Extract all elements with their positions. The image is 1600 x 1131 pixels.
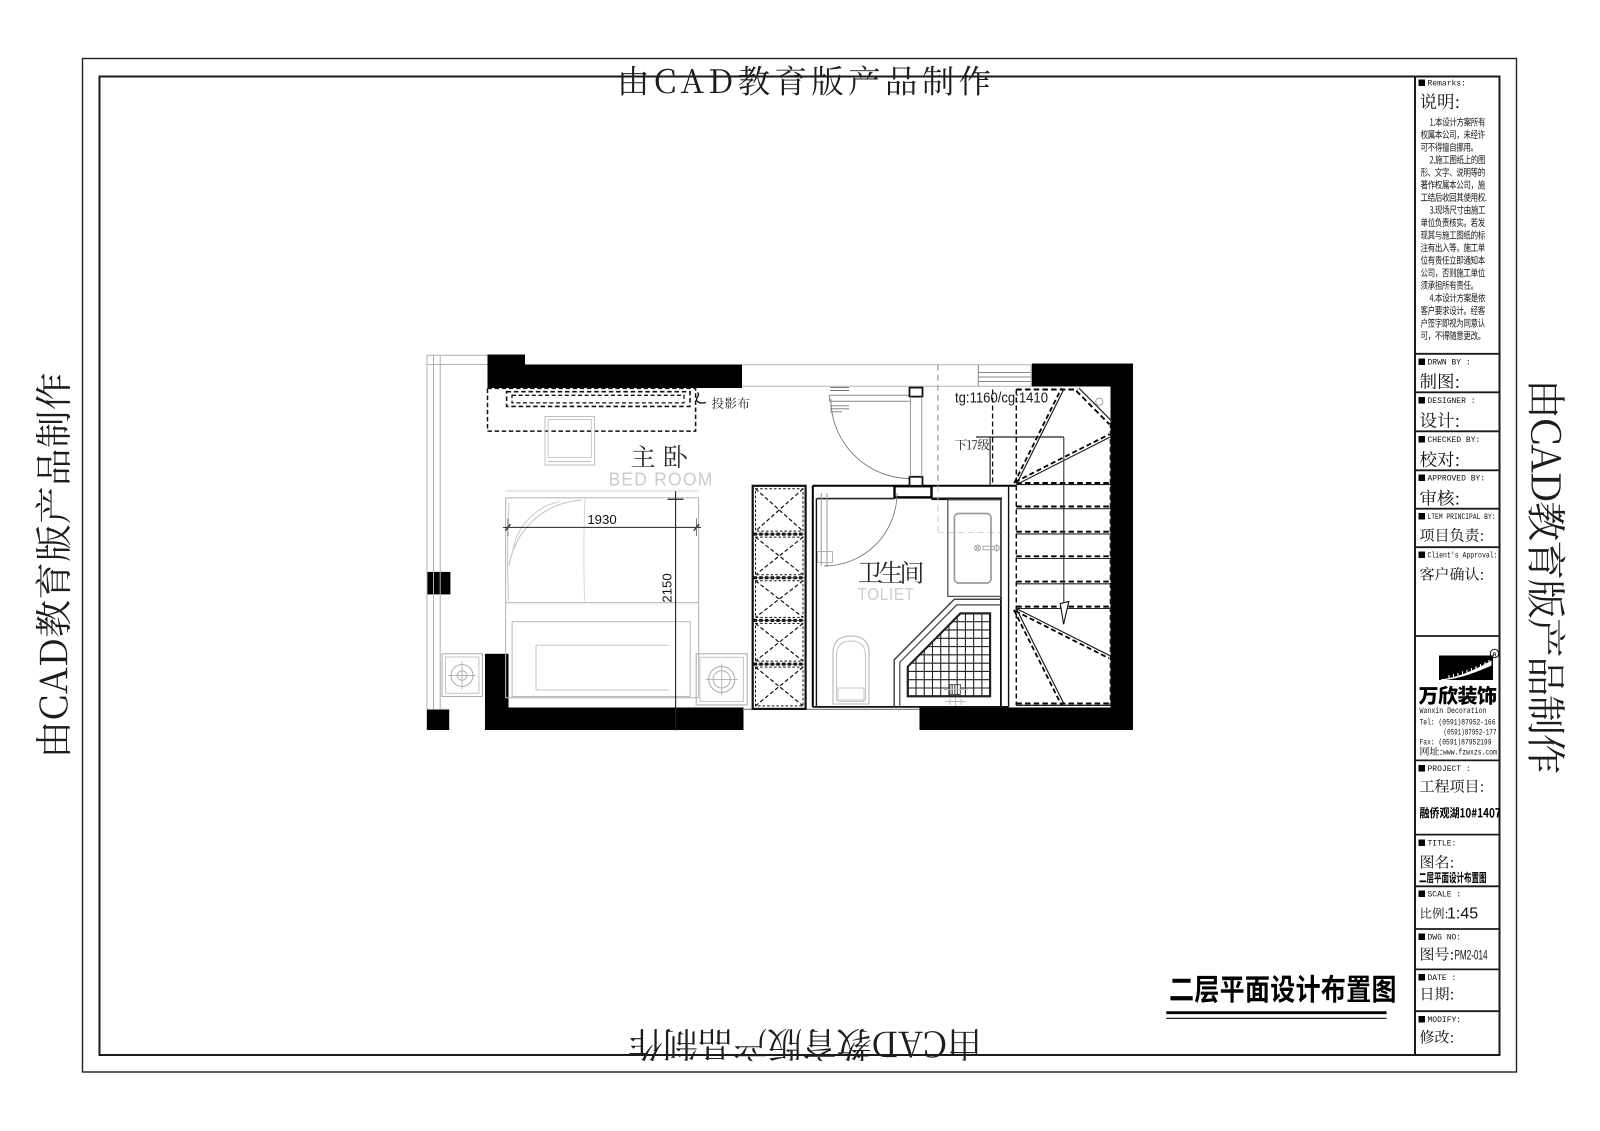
- svg-text:Client's Approval:: Client's Approval:: [1428, 552, 1498, 561]
- svg-text:Tel: (0591)87952-166: Tel: (0591)87952-166: [1420, 719, 1496, 728]
- svg-text:BED ROOM: BED ROOM: [609, 470, 714, 490]
- svg-text:APPROVED BY:: APPROVED BY:: [1428, 475, 1486, 484]
- svg-text:R: R: [1493, 652, 1497, 658]
- svg-text:PROJECT :: PROJECT :: [1428, 765, 1471, 774]
- svg-text:2150: 2150: [660, 573, 675, 602]
- svg-text:Remarks:: Remarks:: [1428, 80, 1466, 89]
- svg-text:Wanxin Decoration: Wanxin Decoration: [1420, 707, 1487, 716]
- svg-text:LTEM PRINCIPAL BY:: LTEM PRINCIPAL BY:: [1428, 513, 1496, 522]
- svg-text:DATE :: DATE :: [1428, 974, 1457, 983]
- svg-text:PM2-014: PM2-014: [1455, 948, 1488, 963]
- svg-text:tg:1160/cg:1410: tg:1160/cg:1410: [955, 391, 1048, 407]
- svg-text:1:45: 1:45: [1447, 906, 1478, 923]
- svg-text:(0591)87952-177: (0591)87952-177: [1444, 728, 1497, 737]
- svg-text:DWG NO:: DWG NO:: [1428, 934, 1462, 943]
- svg-text:CHECKED BY:: CHECKED BY:: [1428, 436, 1481, 445]
- svg-text:TOLIET: TOLIET: [858, 584, 915, 604]
- svg-text:MODIFY:: MODIFY:: [1428, 1016, 1462, 1025]
- svg-text:www.fzwxzs.com: www.fzwxzs.com: [1443, 749, 1497, 758]
- svg-text:TITLE:: TITLE:: [1428, 840, 1457, 849]
- svg-text:Fax: (0591)87952199: Fax: (0591)87952199: [1420, 738, 1492, 747]
- svg-text:DRWN BY :: DRWN BY :: [1428, 359, 1471, 368]
- svg-text:SCALE :: SCALE :: [1428, 891, 1462, 900]
- svg-text:DESIGNER :: DESIGNER :: [1428, 397, 1476, 406]
- svg-text:1930: 1930: [587, 512, 616, 527]
